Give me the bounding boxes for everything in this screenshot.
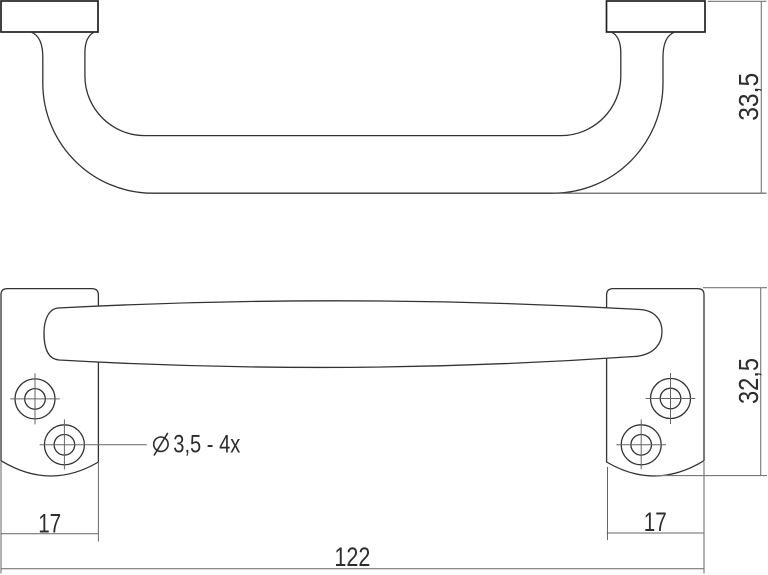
svg-text:122: 122	[334, 542, 370, 572]
svg-text:3,5 - 4x: 3,5 - 4x	[173, 431, 240, 459]
svg-text:32,5: 32,5	[733, 358, 764, 404]
svg-text:17: 17	[38, 509, 61, 539]
svg-text:17: 17	[644, 507, 667, 537]
svg-text:33,5: 33,5	[733, 73, 764, 121]
